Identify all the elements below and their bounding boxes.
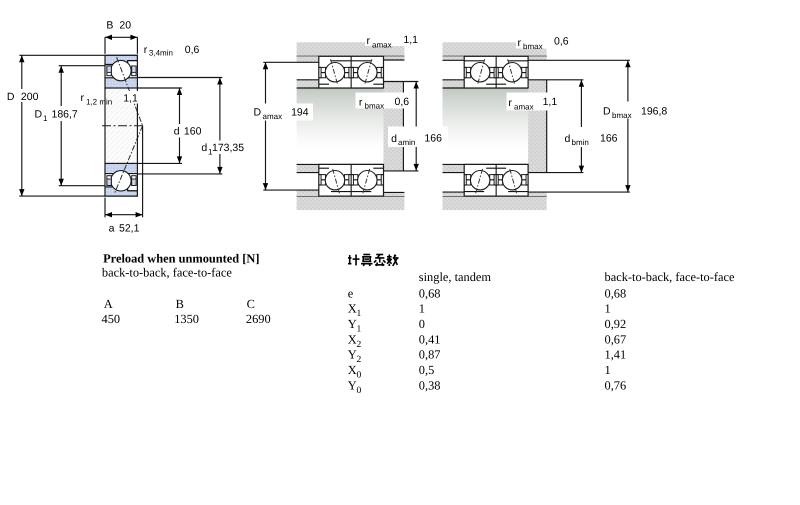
svg-text:0,67: 0,67: [605, 332, 627, 346]
svg-text:amin: amin: [398, 138, 415, 147]
svg-text:1: 1: [357, 325, 362, 335]
svg-text:D: D: [7, 91, 15, 103]
svg-text:3,4min: 3,4min: [149, 48, 173, 57]
svg-text:2690: 2690: [246, 312, 271, 326]
svg-text:0,68: 0,68: [419, 286, 441, 300]
svg-text:2: 2: [357, 340, 362, 350]
svg-text:186,7: 186,7: [52, 109, 78, 121]
svg-text:0,6: 0,6: [395, 96, 410, 108]
svg-text:52,1: 52,1: [119, 223, 140, 235]
svg-text:0,41: 0,41: [419, 332, 441, 346]
svg-text:amax: amax: [263, 112, 283, 121]
svg-text:1,1: 1,1: [403, 34, 418, 46]
svg-text:0,76: 0,76: [605, 378, 627, 392]
svg-text:bmin: bmin: [572, 138, 589, 147]
svg-text:Preload when unmounted [N]: Preload when unmounted [N]: [103, 252, 259, 266]
svg-text:back-to-back, face-to-face: back-to-back, face-to-face: [102, 266, 233, 280]
svg-text:1: 1: [43, 114, 48, 123]
svg-text:Y: Y: [348, 317, 357, 331]
svg-text:r: r: [359, 96, 363, 108]
svg-text:a: a: [109, 223, 115, 235]
svg-text:bmax: bmax: [365, 102, 385, 111]
svg-text:0,5: 0,5: [419, 363, 435, 377]
svg-text:e: e: [348, 286, 354, 300]
svg-text:1,41: 1,41: [605, 348, 627, 362]
svg-text:2: 2: [357, 355, 362, 365]
svg-text:D: D: [254, 107, 262, 119]
svg-text:Y: Y: [348, 378, 357, 392]
svg-text:X: X: [348, 302, 357, 316]
svg-text:196,8: 196,8: [641, 106, 667, 118]
svg-text:amax: amax: [372, 40, 392, 49]
svg-text:1: 1: [419, 302, 425, 316]
svg-text:0,38: 0,38: [419, 378, 441, 392]
svg-text:1: 1: [357, 309, 362, 319]
svg-text:d: d: [174, 126, 180, 138]
svg-text:166: 166: [600, 132, 618, 144]
svg-text:1: 1: [605, 302, 611, 316]
svg-text:A: A: [104, 297, 113, 311]
svg-text:d: d: [391, 133, 397, 145]
svg-text:0,92: 0,92: [605, 317, 627, 331]
svg-text:r: r: [518, 37, 522, 49]
svg-text:bmax: bmax: [612, 111, 632, 120]
svg-text:r: r: [81, 92, 85, 104]
svg-text:B: B: [106, 20, 113, 32]
svg-text:0,6: 0,6: [185, 44, 200, 56]
svg-text:single, tandem: single, tandem: [419, 270, 492, 284]
svg-text:d: d: [565, 133, 571, 145]
svg-text:1350: 1350: [174, 312, 199, 326]
svg-text:D: D: [35, 109, 43, 121]
svg-text:r: r: [144, 44, 148, 56]
svg-text:back-to-back, face-to-face: back-to-back, face-to-face: [605, 270, 736, 284]
svg-text:194: 194: [291, 107, 309, 119]
svg-text:0: 0: [357, 371, 362, 381]
svg-text:Y: Y: [348, 348, 357, 362]
svg-text:B: B: [176, 297, 184, 311]
svg-text:amax: amax: [514, 103, 534, 112]
svg-text:1,2 min: 1,2 min: [86, 98, 112, 107]
svg-text:0: 0: [419, 317, 425, 331]
svg-text:450: 450: [102, 312, 121, 326]
svg-text:d: d: [201, 142, 207, 154]
svg-text:1,1: 1,1: [123, 93, 138, 105]
svg-text:173,35: 173,35: [212, 142, 244, 154]
svg-text:r: r: [367, 35, 371, 47]
svg-text:0: 0: [357, 386, 362, 396]
svg-text:1,1: 1,1: [543, 96, 558, 108]
svg-text:D: D: [603, 106, 611, 118]
svg-text:X: X: [348, 332, 357, 346]
svg-text:X: X: [348, 363, 357, 377]
svg-text:160: 160: [184, 126, 202, 138]
svg-text:bmax: bmax: [523, 42, 543, 51]
svg-text:0,68: 0,68: [605, 286, 627, 300]
svg-text:C: C: [247, 297, 255, 311]
svg-text:r: r: [508, 97, 512, 109]
svg-text:0,87: 0,87: [419, 348, 441, 362]
svg-text:200: 200: [21, 91, 39, 103]
svg-text:20: 20: [119, 20, 131, 32]
svg-text:0,6: 0,6: [554, 36, 569, 48]
svg-text:1: 1: [605, 363, 611, 377]
svg-text:166: 166: [424, 132, 442, 144]
